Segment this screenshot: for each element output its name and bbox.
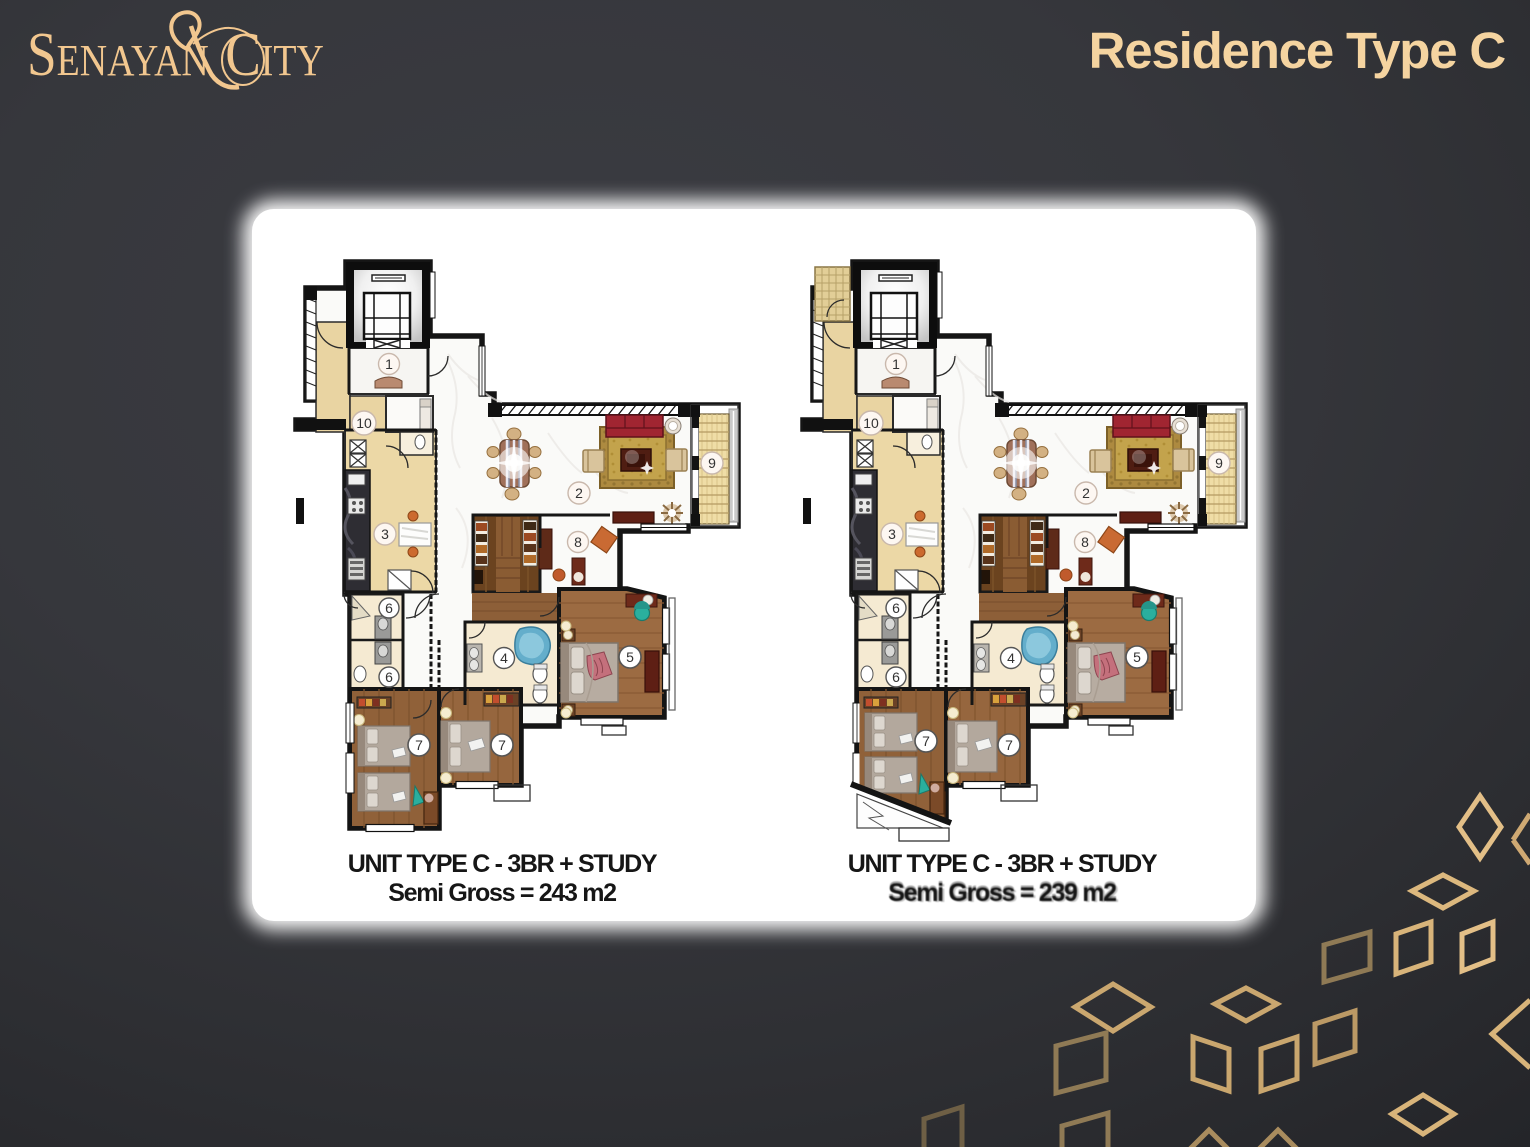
svg-text:7: 7: [922, 733, 930, 749]
